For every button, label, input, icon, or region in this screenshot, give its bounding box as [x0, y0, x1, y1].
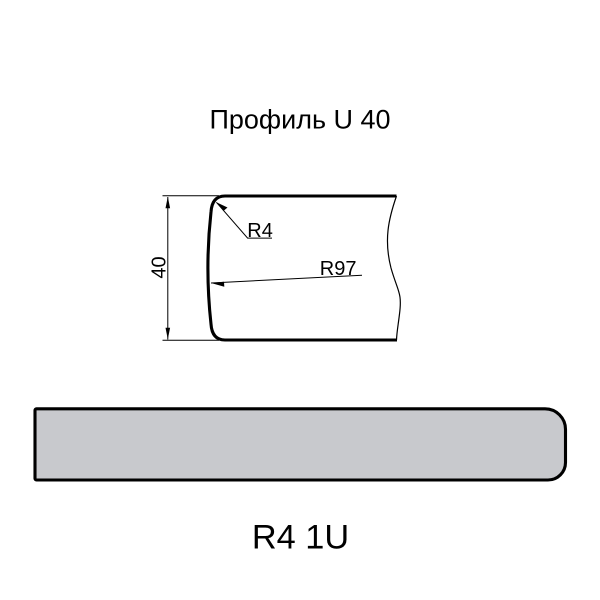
- svg-text:R4 1U: R4 1U: [252, 519, 349, 557]
- svg-text:Профиль U 40: Профиль U 40: [209, 104, 390, 134]
- svg-text:R97: R97: [320, 258, 357, 280]
- svg-text:R4: R4: [247, 220, 273, 242]
- svg-text:40: 40: [149, 256, 171, 278]
